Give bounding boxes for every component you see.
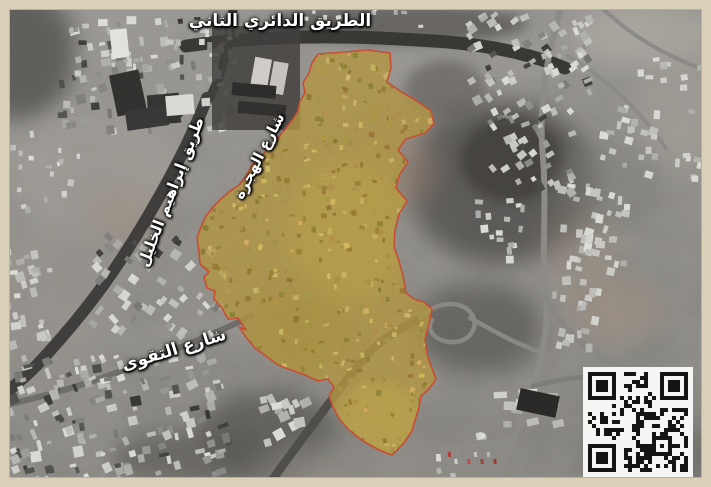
qr-code bbox=[583, 367, 693, 477]
satellite-map bbox=[0, 0, 711, 487]
satellite-map-canvas bbox=[0, 0, 711, 487]
map-figure: الطريق الدائري الثاني طريق إبراهيم الخلي… bbox=[0, 0, 711, 487]
